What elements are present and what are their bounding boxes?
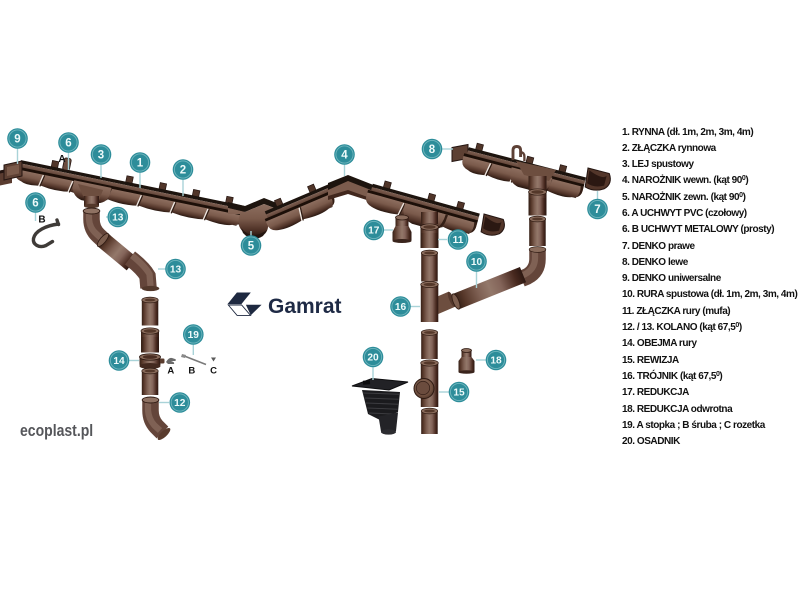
svg-text:2: 2 <box>180 165 186 177</box>
svg-text:Gamrat: Gamrat <box>268 295 342 318</box>
svg-text:6: 6 <box>65 138 71 150</box>
svg-text:8: 8 <box>429 144 436 156</box>
svg-text:19: 19 <box>188 330 200 341</box>
svg-text:A: A <box>58 154 65 165</box>
svg-text:20: 20 <box>367 353 379 364</box>
svg-text:10: 10 <box>471 257 483 268</box>
svg-text:13: 13 <box>170 265 182 276</box>
svg-text:1: 1 <box>137 158 144 170</box>
svg-text:3: 3 <box>98 150 104 162</box>
svg-text:4: 4 <box>341 150 348 162</box>
svg-text:ecoplast.pl: ecoplast.pl <box>20 422 93 440</box>
svg-text:B: B <box>38 215 45 226</box>
svg-text:17: 17 <box>368 226 380 237</box>
svg-text:11: 11 <box>453 235 464 246</box>
svg-text:12: 12 <box>174 398 186 409</box>
svg-text:C: C <box>210 366 217 377</box>
svg-text:6: 6 <box>32 198 38 210</box>
svg-text:A: A <box>167 366 174 377</box>
svg-text:9: 9 <box>14 134 20 146</box>
svg-text:7: 7 <box>594 204 600 216</box>
svg-text:15: 15 <box>453 388 465 399</box>
svg-text:16: 16 <box>395 302 407 313</box>
svg-text:B: B <box>188 366 195 377</box>
svg-text:14: 14 <box>113 356 125 367</box>
svg-text:5: 5 <box>248 241 255 253</box>
svg-text:13: 13 <box>112 213 124 224</box>
svg-text:18: 18 <box>490 356 502 367</box>
